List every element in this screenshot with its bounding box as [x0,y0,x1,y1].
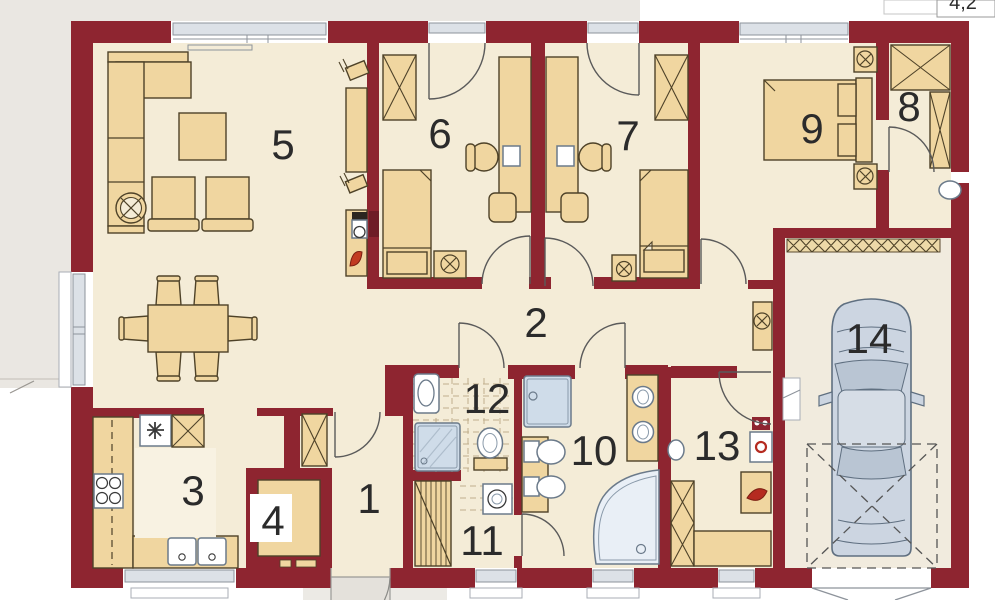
svg-text:11: 11 [460,517,504,564]
svg-text:4,2: 4,2 [949,0,977,14]
svg-text:5: 5 [271,121,294,168]
svg-text:4: 4 [261,497,284,544]
svg-text:2: 2 [524,299,547,346]
svg-text:3: 3 [181,467,204,514]
svg-text:9: 9 [800,105,823,152]
svg-text:1: 1 [357,475,380,522]
svg-text:14: 14 [846,315,893,362]
svg-text:6: 6 [428,110,451,157]
svg-text:8: 8 [897,83,920,130]
svg-text:10: 10 [571,427,618,474]
svg-text:13: 13 [694,422,741,469]
svg-text:12: 12 [464,375,511,422]
svg-text:7: 7 [616,112,639,159]
